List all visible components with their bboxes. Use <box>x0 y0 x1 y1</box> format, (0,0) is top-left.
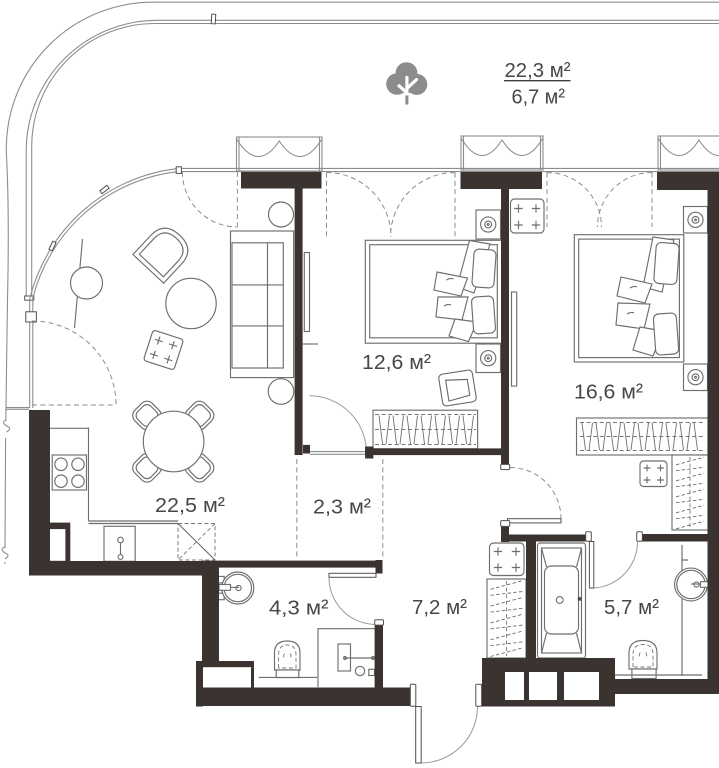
svg-text:6,7 м²: 6,7 м² <box>512 85 566 108</box>
svg-text:2,3 м²: 2,3 м² <box>313 496 371 519</box>
svg-text:12,6 м²: 12,6 м² <box>362 351 431 374</box>
svg-text:22,3 м²: 22,3 м² <box>505 59 571 82</box>
svg-text:16,6 м²: 16,6 м² <box>574 381 643 404</box>
svg-text:22,5 м²: 22,5 м² <box>155 494 225 517</box>
svg-text:7,2 м²: 7,2 м² <box>412 596 467 619</box>
svg-text:5,7 м²: 5,7 м² <box>604 596 659 619</box>
svg-text:4,3 м²: 4,3 м² <box>269 597 329 620</box>
